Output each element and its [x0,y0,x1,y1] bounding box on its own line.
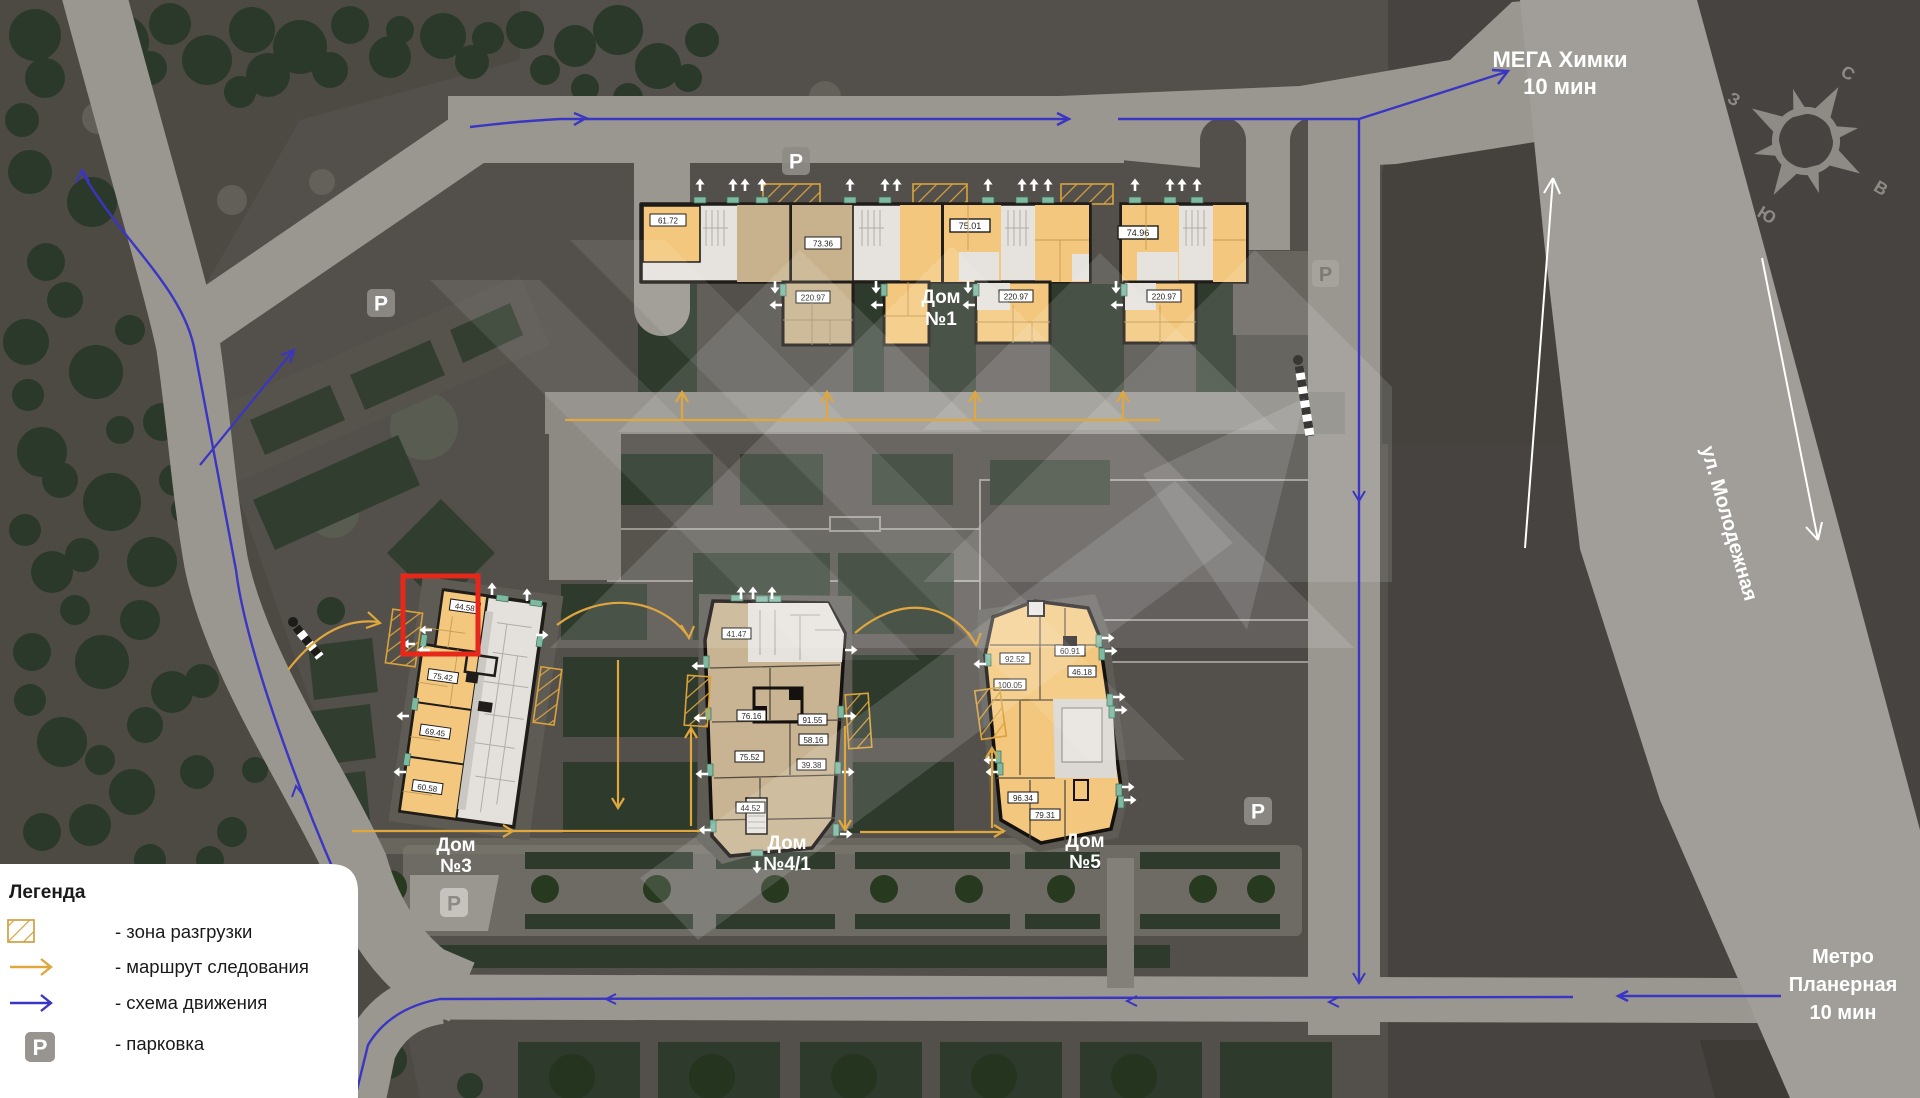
svg-text:Планерная: Планерная [1789,974,1898,996]
svg-text:58.16: 58.16 [803,736,824,745]
svg-text:73.36: 73.36 [813,240,834,249]
svg-text:10 мин: 10 мин [1523,74,1597,99]
svg-text:Дом: Дом [1065,831,1104,852]
svg-text:79.31: 79.31 [1035,811,1056,820]
svg-text:№1: №1 [925,309,957,330]
svg-text:91.55: 91.55 [802,716,823,725]
svg-text:Метро: Метро [1812,946,1874,968]
svg-text:P: P [1319,264,1332,286]
svg-text:220.97: 220.97 [1152,293,1177,302]
svg-text:Дом: Дом [436,835,475,856]
svg-text:Дом: Дом [921,287,960,308]
svg-text:- схема движения: - схема движения [115,992,267,1013]
svg-text:75.01: 75.01 [959,221,982,231]
svg-text:220.97: 220.97 [1004,293,1029,302]
svg-text:75.52: 75.52 [739,753,760,762]
svg-text:- маршрут следования: - маршрут следования [115,956,309,977]
svg-text:№5: №5 [1069,852,1101,873]
svg-text:- зона разгрузки: - зона разгрузки [115,921,252,942]
svg-text:Легенда: Легенда [9,882,86,903]
svg-text:76.16: 76.16 [741,712,762,721]
svg-text:61.72: 61.72 [658,217,679,226]
svg-text:96.34: 96.34 [1013,794,1034,803]
svg-text:- парковка: - парковка [115,1033,205,1054]
svg-text:10 мин: 10 мин [1810,1002,1877,1024]
svg-text:№3: №3 [440,856,472,877]
svg-text:МЕГА Химки: МЕГА Химки [1492,47,1627,72]
svg-text:№4/1: №4/1 [763,854,811,875]
svg-text:P: P [447,893,461,916]
svg-text:Дом: Дом [767,833,806,854]
